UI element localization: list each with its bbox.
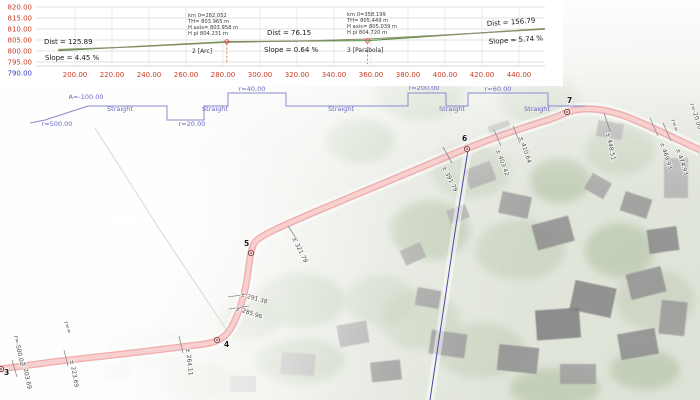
- alignment-band-label: Straight: [202, 105, 228, 113]
- alignment-band-label: Straight: [524, 105, 550, 113]
- alignment-band-label: r=20.00: [179, 120, 206, 128]
- alignment-band-label: Straight: [107, 105, 133, 113]
- point-number: 7: [567, 96, 572, 105]
- y-axis-label: 795.00: [8, 59, 33, 67]
- point-marker-dot-icon: [466, 148, 468, 150]
- point-number: 5: [244, 239, 249, 248]
- x-axis-label: 260.00: [174, 71, 199, 79]
- x-axis-label: 280.00: [211, 71, 236, 79]
- road-fill: [0, 109, 700, 369]
- vertex-annotation-line: H pl 804.231 m: [188, 31, 228, 37]
- station-label: ± 321.79: [290, 236, 309, 264]
- x-axis-label: 340.00: [322, 71, 347, 79]
- horizontal-alignment-band: A=-100.00Straightr=500.00r=20.00Straight…: [30, 84, 585, 128]
- station-label: ± 448.51: [604, 132, 617, 161]
- point-marker-dot-icon: [566, 111, 568, 113]
- x-axis-label: 380.00: [396, 71, 421, 79]
- alignment-band-label: r=60.00: [485, 85, 512, 93]
- alignment-band-label: r=500.00: [42, 120, 73, 128]
- vertex-name: 2 [Arc]: [192, 48, 212, 55]
- x-axis-label: 200.00: [63, 71, 88, 79]
- point-number: 3: [4, 368, 9, 377]
- segment-slope-label: Slope = 4.45 %: [45, 54, 100, 62]
- drawing-overlay: r=-500.00± 203.69± 223.69r=∞± 264.11± 28…: [0, 0, 700, 400]
- y-axis-label: 810.00: [8, 26, 33, 34]
- y-axis-label: 805.00: [8, 37, 33, 45]
- x-axis-label: 240.00: [137, 71, 162, 79]
- x-axis-label: 440.00: [507, 71, 532, 79]
- y-axis-label: 800.00: [8, 48, 33, 56]
- station-label: r=∞: [62, 320, 73, 334]
- alignment-band-label: r=40.00: [239, 85, 266, 93]
- x-axis-label: 320.00: [285, 71, 310, 79]
- point-number: 6: [462, 134, 467, 143]
- point-marker-dot-icon: [250, 252, 252, 254]
- station-labels: r=-500.00± 203.69± 223.69r=∞± 264.11± 28…: [12, 102, 700, 389]
- road-alignment: [0, 109, 700, 369]
- x-axis-label: 420.00: [470, 71, 495, 79]
- station-label: ± 391.79: [440, 165, 459, 193]
- x-axis-label: 360.00: [359, 71, 384, 79]
- y-axis-label: 790.00: [8, 70, 33, 78]
- x-axis-label: 400.00: [433, 71, 458, 79]
- aerial-road-strip: [0, 109, 700, 369]
- point-number: 4: [224, 340, 229, 349]
- vertex-annotation-line: H pl 804.720 m: [347, 30, 387, 36]
- profile-chart: 820.00815.00810.00805.00800.00795.00790.…: [0, 0, 563, 86]
- boundary-line: [95, 128, 228, 332]
- station-label: ± 403.42: [494, 148, 510, 177]
- station-label: r=-20.00: [688, 102, 700, 130]
- survey-lines: [430, 150, 468, 400]
- y-axis-label: 815.00: [8, 15, 33, 23]
- x-axis-label: 300.00: [248, 71, 273, 79]
- segment-dist-label: Dist = 76.15: [267, 29, 311, 37]
- x-axis-label: 220.00: [100, 71, 125, 79]
- alignment-band-label: A=-100.00: [69, 93, 104, 101]
- station-label: ± 474.93: [674, 147, 689, 176]
- segment-slope-label: Slope = 0.64 %: [264, 46, 319, 54]
- road-edge-lines: [0, 109, 700, 369]
- survey-offset-line: [430, 150, 468, 400]
- segment-dist-label: Dist = 125.89: [44, 38, 93, 46]
- alignment-point-3[interactable]: 3: [0, 366, 9, 377]
- station-label: ± 410.64: [517, 135, 532, 164]
- point-marker-dot-icon: [0, 368, 2, 370]
- vertex-name: 3 [Parabola]: [347, 47, 383, 54]
- y-axis-label: 820.00: [8, 4, 33, 12]
- station-label: ± 469.93: [658, 141, 673, 170]
- cad-viewport[interactable]: r=-500.00± 203.69± 223.69r=∞± 264.11± 28…: [0, 0, 700, 400]
- point-marker-dot-icon: [216, 339, 218, 341]
- alignment-band-label: Straight: [439, 105, 465, 113]
- alignment-band-label: Straight: [328, 105, 354, 113]
